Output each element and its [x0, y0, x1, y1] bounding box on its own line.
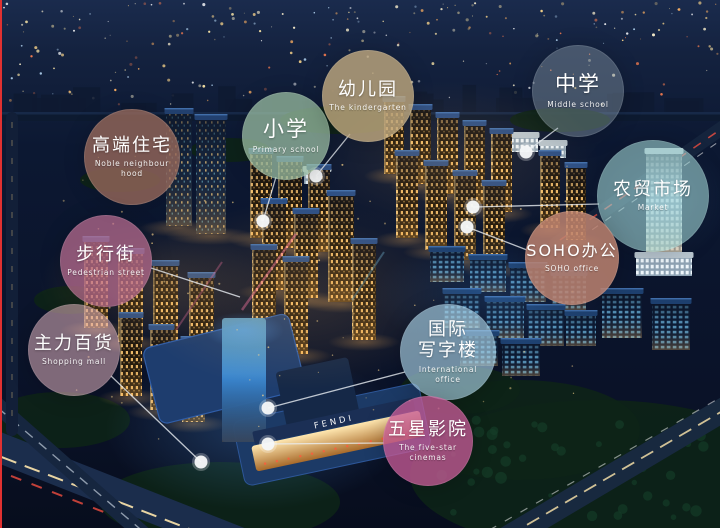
label-bubble-pedestrian-street: 步行街Pedestrian street	[60, 215, 152, 307]
label-en-middle-school: Middle school	[547, 100, 609, 110]
label-en-market: Market	[638, 203, 669, 213]
label-zh-noble-residence: 高端住宅	[92, 135, 172, 156]
label-zh-international-office: 国际 写字楼	[418, 319, 478, 361]
label-zh-shopping-mall: 主力百货	[34, 333, 114, 354]
label-bubble-primary-school: 小学Primary school	[242, 92, 330, 180]
label-bubble-middle-school: 中学Middle school	[532, 45, 624, 137]
label-bubbles: 高端住宅Noble neighbour hood小学Primary school…	[0, 0, 720, 528]
label-bubble-kindergarten: 幼儿园The kindergarten	[322, 50, 414, 142]
label-zh-market: 农贸市场	[613, 179, 693, 200]
label-en-pedestrian-street: Pedestrian street	[67, 268, 145, 278]
label-bubble-international-office: 国际 写字楼International office	[400, 304, 496, 400]
label-en-soho-office: SOHO office	[545, 264, 599, 274]
label-zh-primary-school: 小学	[263, 117, 309, 142]
label-zh-soho-office: SOHO办公	[526, 242, 617, 261]
label-en-shopping-mall: Shopping mall	[42, 357, 106, 367]
label-zh-pedestrian-street: 步行街	[76, 244, 136, 265]
label-zh-five-star-cinemas: 五星影院	[388, 419, 468, 440]
label-en-primary-school: Primary school	[253, 145, 320, 155]
label-bubble-shopping-mall: 主力百货Shopping mall	[28, 304, 120, 396]
label-en-international-office: International office	[419, 365, 477, 385]
label-en-kindergarten: The kindergarten	[329, 103, 406, 113]
left-border	[0, 0, 2, 528]
label-en-noble-residence: Noble neighbour hood	[84, 159, 180, 179]
label-bubble-five-star-cinemas: 五星影院The five-star cinemas	[383, 396, 473, 486]
masterplan-image: FENDI 高端住宅Noble neighbour hood小学Primary …	[0, 0, 720, 528]
label-zh-middle-school: 中学	[555, 72, 601, 97]
label-en-five-star-cinemas: The five-star cinemas	[383, 443, 473, 463]
label-bubble-noble-residence: 高端住宅Noble neighbour hood	[84, 109, 180, 205]
label-zh-kindergarten: 幼儿园	[338, 79, 398, 100]
label-bubble-market: 农贸市场Market	[597, 140, 709, 252]
label-bubble-soho-office: SOHO办公SOHO office	[525, 211, 619, 305]
